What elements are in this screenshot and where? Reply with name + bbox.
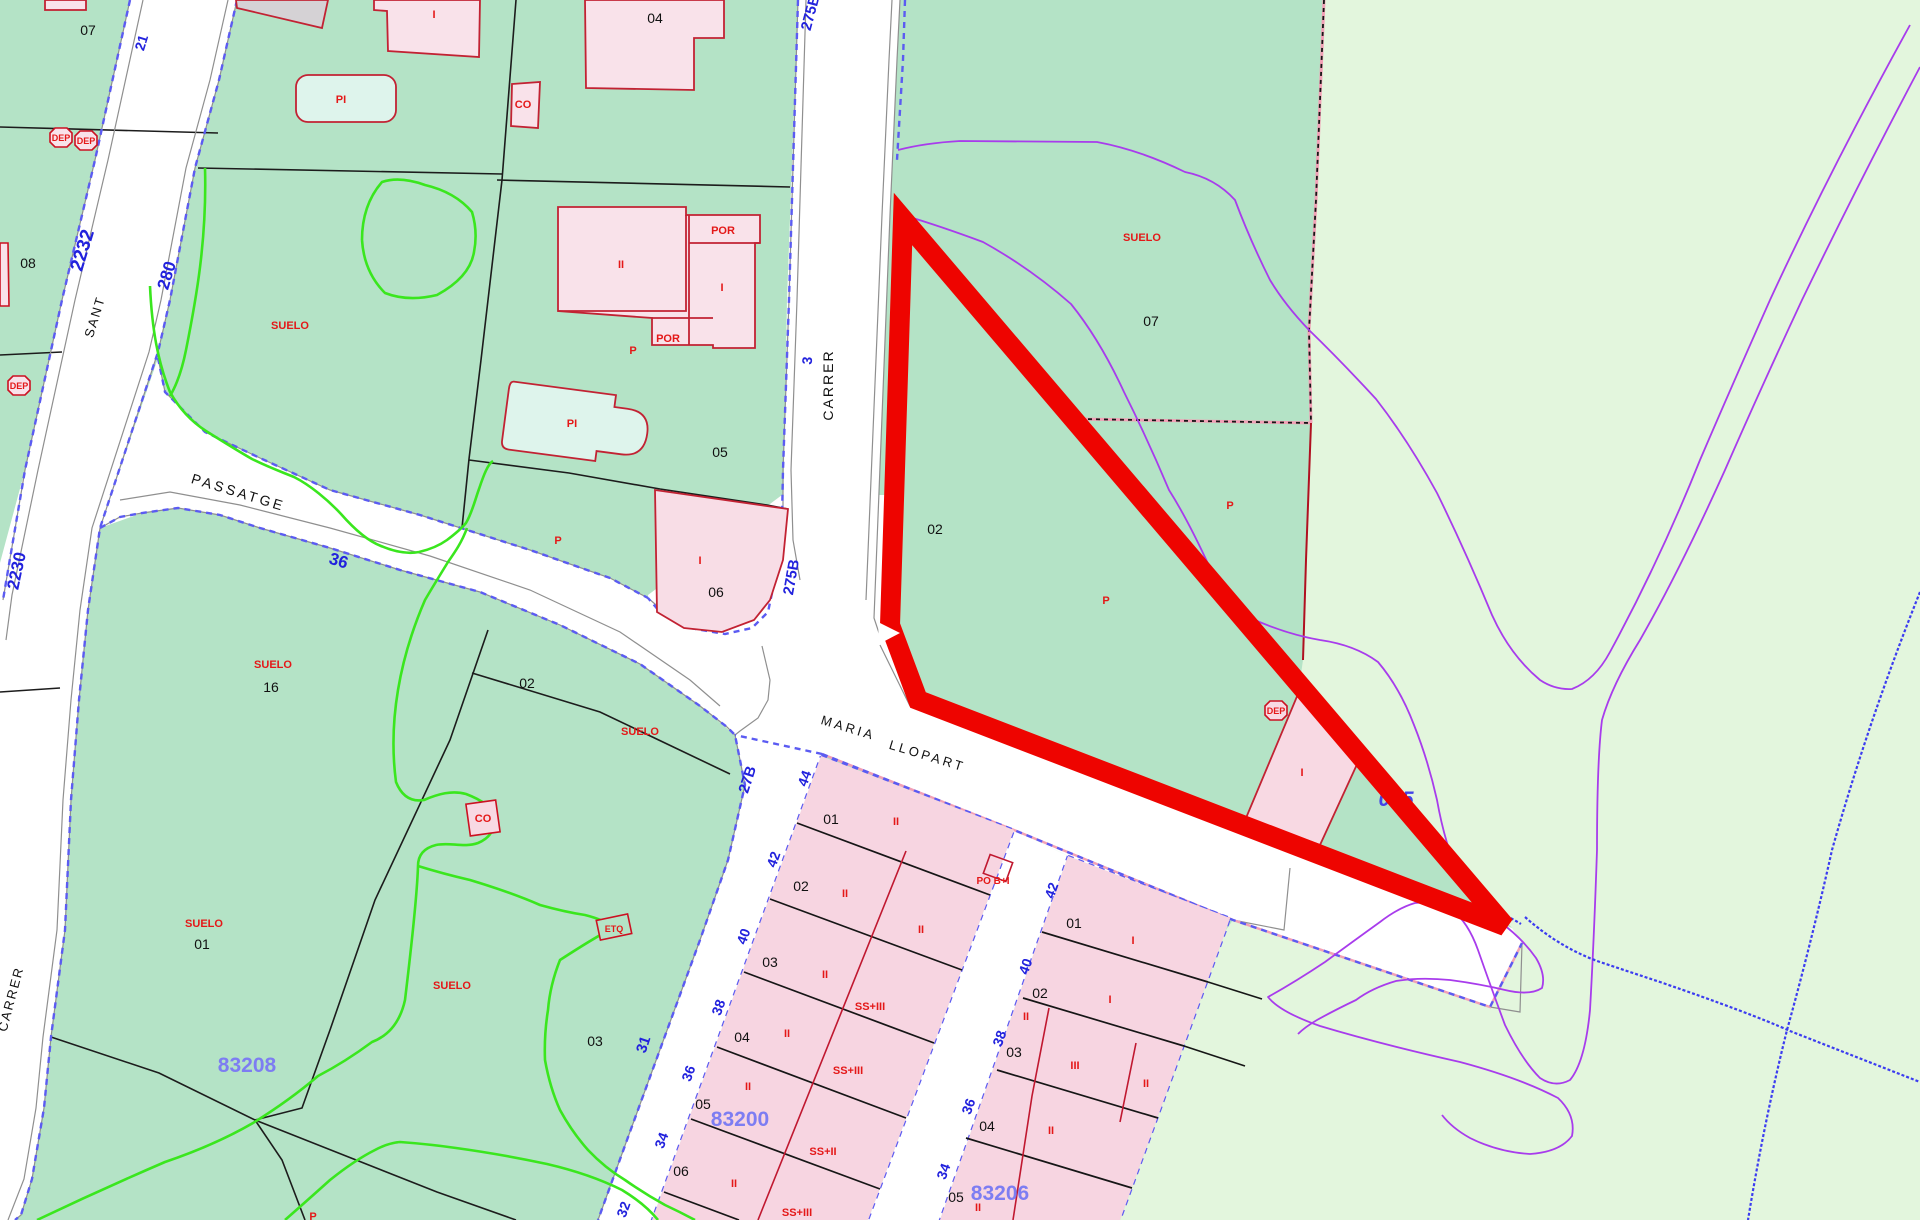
svg-text:03: 03 — [762, 954, 778, 970]
svg-text:P: P — [554, 535, 561, 547]
svg-text:II: II — [745, 1081, 751, 1093]
svg-text:01: 01 — [823, 811, 839, 827]
svg-text:DEP: DEP — [52, 133, 71, 143]
svg-text:SUELO: SUELO — [254, 659, 292, 671]
svg-text:SS+III: SS+III — [833, 1065, 863, 1077]
svg-text:II: II — [731, 1178, 737, 1190]
svg-text:I: I — [698, 555, 701, 567]
svg-text:P: P — [629, 345, 636, 357]
svg-text:83200: 83200 — [711, 1108, 769, 1131]
svg-text:P: P — [1102, 595, 1109, 607]
svg-text:PI: PI — [567, 418, 577, 430]
svg-text:SS+III: SS+III — [782, 1207, 812, 1219]
svg-text:DEP: DEP — [10, 381, 29, 391]
svg-text:06: 06 — [673, 1163, 689, 1179]
svg-text:SUELO: SUELO — [621, 726, 659, 738]
svg-text:SS+II: SS+II — [809, 1146, 836, 1158]
svg-text:II: II — [1048, 1125, 1054, 1137]
svg-text:SUELO: SUELO — [433, 980, 471, 992]
svg-text:SUELO: SUELO — [185, 918, 223, 930]
svg-text:04: 04 — [979, 1118, 995, 1134]
svg-text:02: 02 — [1032, 985, 1048, 1001]
svg-text:II: II — [975, 1202, 981, 1214]
svg-text:CO: CO — [515, 99, 532, 111]
svg-text:III: III — [1070, 1060, 1079, 1072]
svg-text:P: P — [1226, 500, 1233, 512]
svg-text:3: 3 — [799, 356, 816, 365]
svg-text:DEP: DEP — [1267, 706, 1286, 716]
svg-text:P: P — [309, 1211, 316, 1220]
svg-text:II: II — [822, 969, 828, 981]
svg-text:II: II — [784, 1028, 790, 1040]
svg-text:SUELO: SUELO — [271, 320, 309, 332]
svg-text:CARRER: CARRER — [820, 349, 836, 420]
svg-text:II: II — [893, 816, 899, 828]
svg-text:II: II — [1143, 1078, 1149, 1090]
svg-text:POR: POR — [711, 225, 735, 237]
svg-text:01: 01 — [1066, 915, 1082, 931]
svg-text:PI: PI — [336, 94, 346, 106]
svg-text:83208: 83208 — [218, 1054, 277, 1077]
svg-text:03: 03 — [587, 1033, 603, 1049]
svg-text:06: 06 — [708, 584, 724, 600]
svg-text:02: 02 — [793, 878, 809, 894]
svg-text:II: II — [842, 888, 848, 900]
svg-text:05: 05 — [712, 444, 728, 460]
svg-text:POR: POR — [656, 333, 680, 345]
svg-text:07: 07 — [1143, 313, 1159, 329]
svg-text:II: II — [918, 924, 924, 936]
svg-text:03: 03 — [1006, 1044, 1022, 1060]
svg-text:08: 08 — [20, 255, 36, 271]
svg-text:DEP: DEP — [77, 136, 96, 146]
svg-text:SS+III: SS+III — [855, 1001, 885, 1013]
svg-text:07: 07 — [80, 22, 96, 38]
svg-text:02: 02 — [519, 675, 535, 691]
svg-text:02: 02 — [927, 521, 943, 537]
svg-text:04: 04 — [734, 1029, 750, 1045]
svg-text:04: 04 — [647, 10, 663, 26]
svg-text:II: II — [618, 259, 624, 271]
svg-text:CO: CO — [475, 813, 492, 825]
svg-text:SUELO: SUELO — [1123, 232, 1161, 244]
svg-text:ETQ: ETQ — [605, 924, 624, 934]
svg-text:I: I — [1131, 935, 1134, 947]
svg-text:I: I — [1300, 767, 1303, 779]
svg-text:PO B+I: PO B+I — [976, 876, 1009, 887]
svg-text:05: 05 — [695, 1096, 711, 1112]
svg-text:05: 05 — [948, 1189, 964, 1205]
svg-text:16: 16 — [263, 679, 279, 695]
svg-text:01: 01 — [194, 936, 210, 952]
svg-text:I: I — [720, 282, 723, 294]
svg-text:I: I — [1108, 994, 1111, 1006]
svg-text:I: I — [432, 9, 435, 21]
svg-text:II: II — [1023, 1011, 1029, 1023]
